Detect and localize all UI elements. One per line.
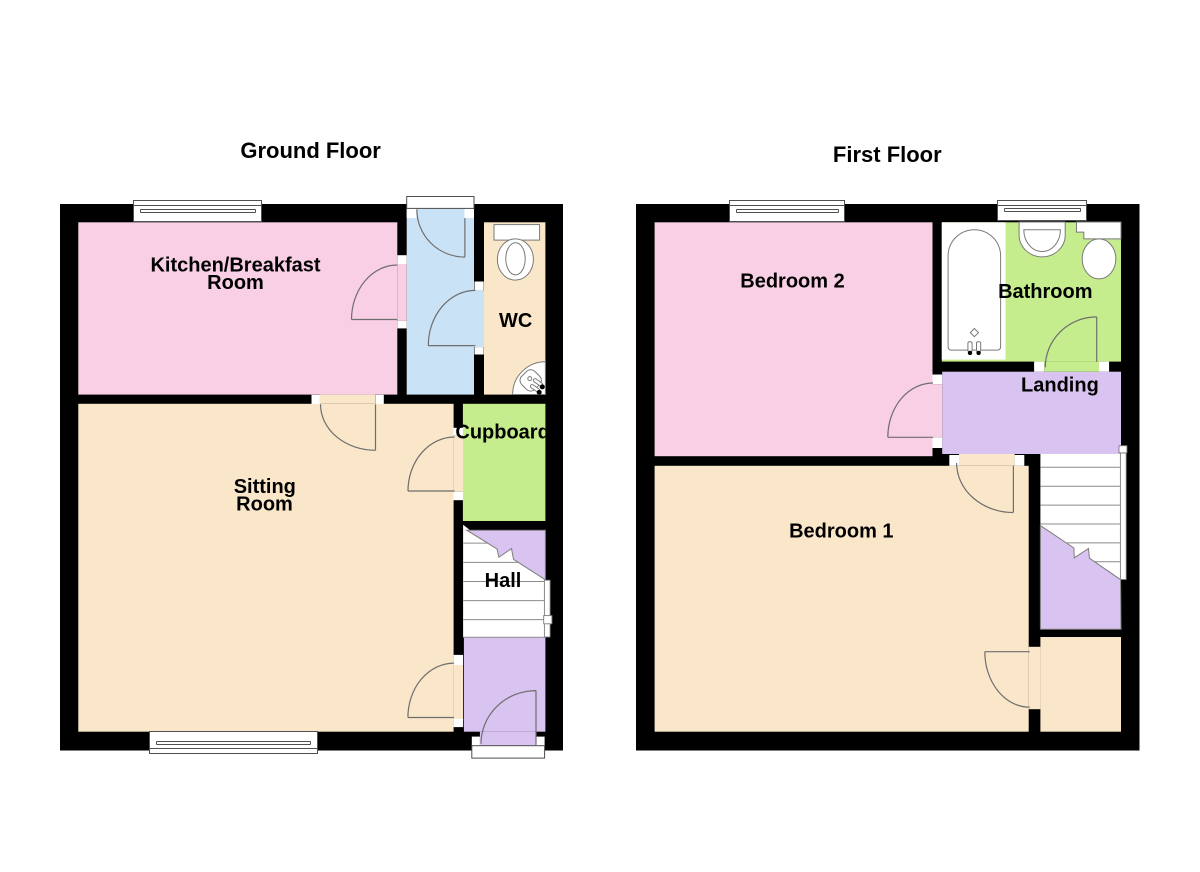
svg-text:Bedroom 1: Bedroom 1	[789, 521, 893, 543]
svg-text:Room: Room	[207, 272, 264, 294]
svg-text:Bathroom: Bathroom	[998, 281, 1092, 303]
svg-text:Bedroom 2: Bedroom 2	[740, 271, 844, 293]
svg-text:Room: Room	[236, 493, 293, 515]
svg-text:First Floor: First Floor	[833, 142, 942, 167]
svg-text:Ground Floor: Ground Floor	[240, 138, 381, 163]
svg-text:WC: WC	[499, 310, 532, 332]
svg-text:Cupboard: Cupboard	[455, 421, 549, 443]
svg-text:Landing: Landing	[1021, 374, 1099, 396]
svg-text:Hall: Hall	[485, 570, 522, 592]
